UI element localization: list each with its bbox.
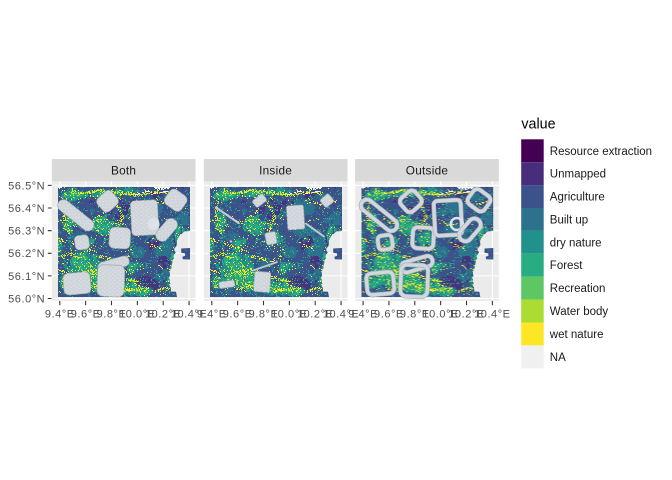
svg-text:Agriculture: Agriculture <box>550 192 605 204</box>
svg-text:Built up: Built up <box>550 214 588 226</box>
svg-text:value: value <box>521 117 555 133</box>
svg-text:Both: Both <box>111 164 136 178</box>
svg-text:Recreation: Recreation <box>550 283 606 295</box>
svg-text:Resource extraction: Resource extraction <box>550 146 652 158</box>
svg-text:56.2°N: 56.2°N <box>8 248 45 260</box>
svg-text:56.3°N: 56.3°N <box>8 226 45 238</box>
svg-text:56.1°N: 56.1°N <box>8 271 45 283</box>
svg-text:Water body: Water body <box>550 306 609 318</box>
svg-text:10.4°E: 10.4°E <box>474 309 510 321</box>
svg-text:56.0°N: 56.0°N <box>8 293 45 305</box>
svg-text:56.4°N: 56.4°N <box>8 203 45 215</box>
svg-text:wet nature: wet nature <box>549 329 604 341</box>
svg-text:NA: NA <box>550 352 566 364</box>
svg-text:Inside: Inside <box>259 164 292 178</box>
svg-text:Outside: Outside <box>406 164 449 178</box>
svg-text:56.5°N: 56.5°N <box>8 180 45 192</box>
svg-text:dry nature: dry nature <box>550 237 602 249</box>
svg-text:Forest: Forest <box>550 260 583 272</box>
svg-text:Unmapped: Unmapped <box>550 169 606 181</box>
